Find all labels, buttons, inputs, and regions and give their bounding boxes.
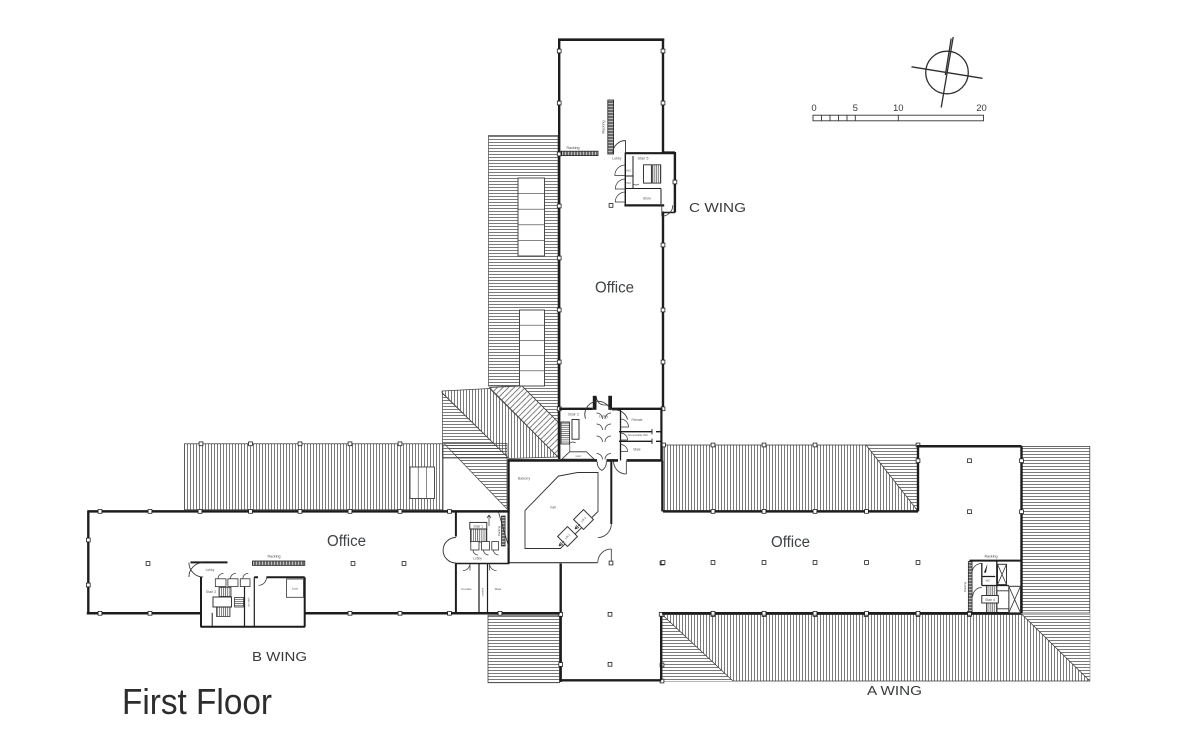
svg-text:WC: WC [626,181,632,185]
svg-text:Lobby: Lobby [206,568,215,572]
svg-text:Stair 4: Stair 4 [985,598,995,602]
svg-text:Lobby: Lobby [612,157,622,161]
svg-text:Stair 5: Stair 5 [638,157,649,161]
svg-text:WC: WC [626,169,632,173]
svg-text:Accessible WC: Accessible WC [628,433,650,437]
svg-text:Office: Office [595,280,634,297]
svg-text:Racking: Racking [985,555,998,559]
svg-text:Stair 1: Stair 1 [473,524,483,528]
svg-text:Male: Male [495,587,502,591]
svg-text:Racking: Racking [602,121,606,134]
svg-text:Racking: Racking [268,555,281,559]
svg-text:WC: WC [986,579,991,583]
svg-text:20: 20 [976,103,987,114]
svg-text:corridor: corridor [480,587,484,596]
svg-text:Store: Store [643,197,651,201]
svg-text:Racking: Racking [963,582,967,593]
svg-text:0: 0 [811,103,816,114]
svg-text:Stair 3: Stair 3 [206,590,216,594]
svg-text:A WING: A WING [867,683,922,698]
svg-text:Female: Female [461,587,472,591]
svg-text:hall: hall [550,506,556,510]
svg-text:Lobby: Lobby [473,557,482,561]
svg-text:Stair 2: Stair 2 [568,412,579,416]
svg-text:Racking: Racking [567,146,580,150]
svg-text:Lobby: Lobby [599,415,608,419]
svg-text:Lock: Lock [292,587,299,591]
svg-text:C WING: C WING [689,200,746,215]
svg-text:corridor: corridor [247,597,251,607]
svg-text:5: 5 [853,103,858,114]
svg-text:Balcony: Balcony [518,477,530,481]
svg-text:Office: Office [771,534,810,551]
svg-text:Office: Office [327,533,366,550]
svg-text:Racking: Racking [497,526,501,537]
svg-text:void: void [575,454,581,458]
svg-text:Female: Female [632,418,643,422]
svg-text:10: 10 [893,103,904,114]
svg-text:B WING: B WING [252,649,307,664]
svg-text:First Floor: First Floor [122,681,272,722]
svg-text:Male: Male [633,448,640,452]
